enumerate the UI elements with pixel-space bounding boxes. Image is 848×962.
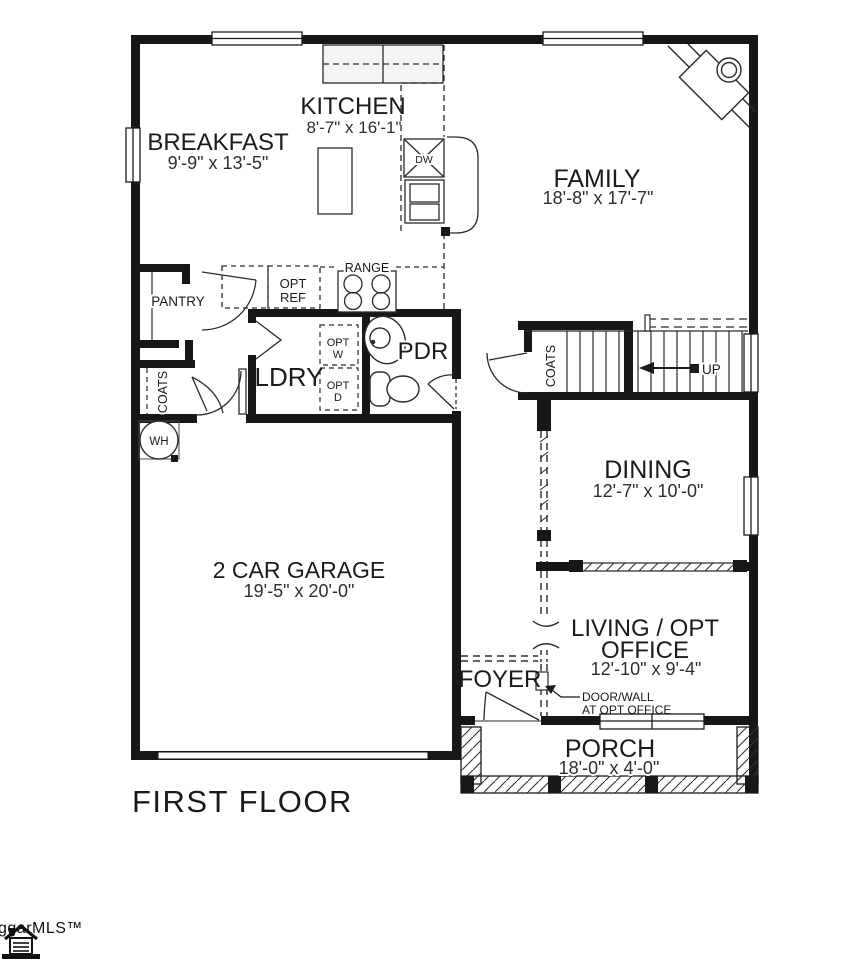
- mls-watermark: ggarMLS™: [2, 921, 83, 940]
- fireplace: [668, 44, 756, 128]
- opt-office-note-1: DOOR/WALL: [582, 690, 654, 704]
- pantry-label: PANTRY: [151, 294, 205, 309]
- counter-return: [447, 137, 478, 233]
- dw-label: DW: [415, 154, 433, 166]
- wh-label: WH: [149, 436, 168, 448]
- wall-break-symbol: [533, 621, 559, 626]
- opt-ref-label-2: REF: [280, 290, 306, 305]
- toilet: [370, 372, 419, 406]
- laundry-bifold-door: [256, 321, 281, 359]
- floor-plan: BREAKFAST 9'-9" x 13'-5" KITCHEN 8'-7" x…: [0, 0, 848, 962]
- garage-dims: 19'-5" x 20'-0": [244, 581, 355, 601]
- garage-door: [158, 752, 428, 759]
- opt-office-note-2: AT OPT OFFICE: [582, 703, 671, 717]
- window-left-breakfast: [126, 128, 140, 182]
- opt-washer-box: OPT W: [320, 325, 358, 365]
- window-right-dining: [744, 477, 758, 535]
- opt-d-label-2: D: [334, 392, 342, 404]
- foyer-label: FOYER: [459, 666, 542, 693]
- house-logo-icon: [2, 921, 44, 961]
- window-top-breakfast: [212, 32, 302, 45]
- range-cooktop: [338, 271, 396, 312]
- living-dims: 12'-10" x 9'-4": [591, 659, 702, 679]
- coats-hall-label: COATS: [156, 371, 170, 413]
- breakfast-label: BREAKFAST: [147, 129, 289, 156]
- plan-title: FIRST FLOOR: [132, 784, 353, 819]
- laundry-label: LDRY: [255, 362, 324, 392]
- opt-ref-label-1: OPT: [280, 276, 307, 291]
- stair-closet-door: [487, 353, 527, 393]
- powder-label: PDR: [398, 338, 449, 365]
- opt-d-label-1: OPT: [327, 380, 350, 392]
- garage-label: 2 CAR GARAGE: [213, 557, 386, 583]
- dining-dims: 12'-7" x 10'-0": [593, 481, 704, 501]
- range-label: RANGE: [345, 261, 389, 275]
- porch-dims: 18'-0" x 4'-0": [559, 758, 660, 778]
- opt-w-label-1: OPT: [327, 337, 350, 349]
- opt-w-label-2: W: [333, 349, 344, 361]
- pantry-door: [202, 272, 256, 330]
- coats-door: [192, 377, 223, 413]
- kitchen-sink: [405, 180, 444, 223]
- floor-plan-canvas: BREAKFAST 9'-9" x 13'-5" KITCHEN 8'-7" x…: [0, 0, 848, 962]
- garage-entry-door: [197, 369, 246, 415]
- kitchen-dims: 8'-7" x 16'-1": [306, 118, 401, 137]
- kitchen-label: KITCHEN: [300, 93, 405, 120]
- dining-label: DINING: [604, 456, 692, 484]
- front-door: [475, 692, 541, 721]
- note-leader: [545, 685, 580, 697]
- powder-door: [428, 375, 456, 409]
- window-top-family: [543, 32, 643, 45]
- porch-railing: [461, 776, 758, 793]
- window-right-stairs: [744, 334, 758, 392]
- dining-living-opening: [582, 563, 733, 571]
- breakfast-dims: 9'-9" x 13'-5": [168, 153, 269, 173]
- family-dims: 18'-8" x 17'-7": [543, 188, 654, 208]
- kitchen-island: [318, 148, 352, 214]
- coats-stairs-label: COATS: [544, 345, 558, 387]
- up-label: UP: [702, 362, 721, 377]
- opt-dryer-box: OPT D: [320, 368, 358, 410]
